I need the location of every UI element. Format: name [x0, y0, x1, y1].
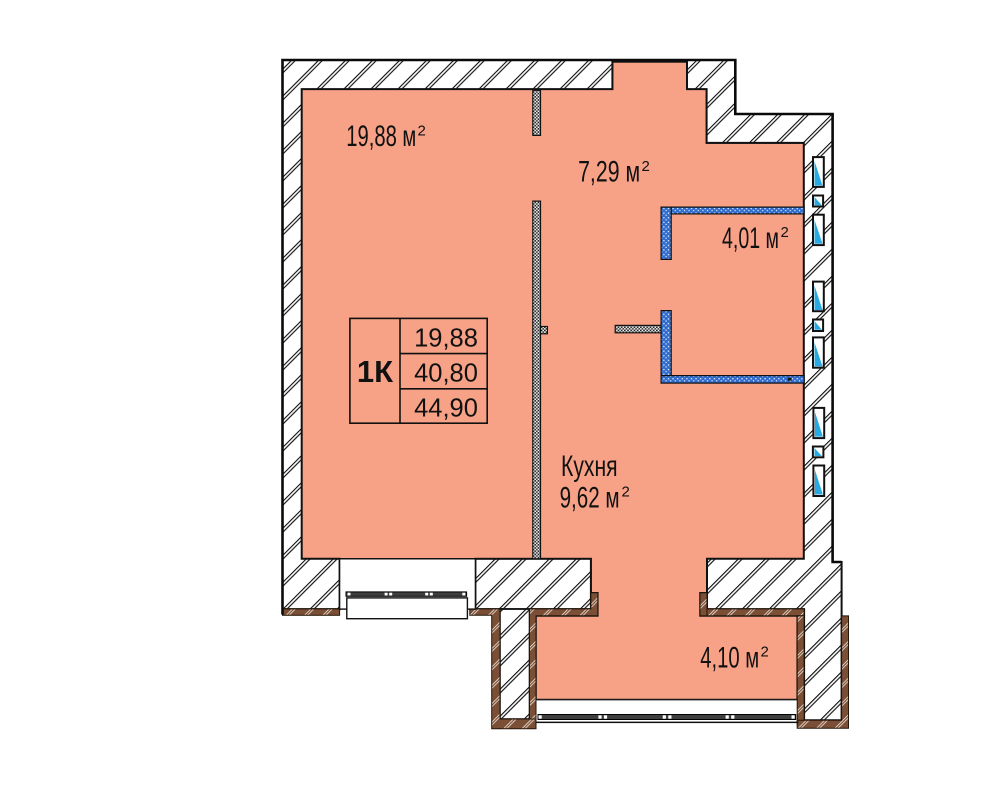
svg-text:19,88 м: 19,88 м — [346, 120, 416, 153]
svg-text:1К: 1К — [357, 354, 393, 389]
svg-text:44,90: 44,90 — [414, 394, 478, 422]
svg-text:40,80: 40,80 — [414, 360, 478, 388]
svg-text:19,88: 19,88 — [414, 324, 478, 352]
svg-text:Кухня: Кухня — [561, 450, 618, 483]
svg-text:4,10 м: 4,10 м — [700, 642, 759, 675]
svg-text:9,62 м: 9,62 м — [560, 482, 620, 515]
svg-text:2: 2 — [761, 644, 769, 661]
svg-text:2: 2 — [781, 224, 789, 241]
svg-text:2: 2 — [642, 158, 650, 175]
svg-text:2: 2 — [622, 484, 630, 501]
svg-text:4,01 м: 4,01 м — [722, 222, 779, 255]
svg-text:7,29 м: 7,29 м — [578, 156, 640, 189]
svg-text:2: 2 — [418, 123, 426, 140]
